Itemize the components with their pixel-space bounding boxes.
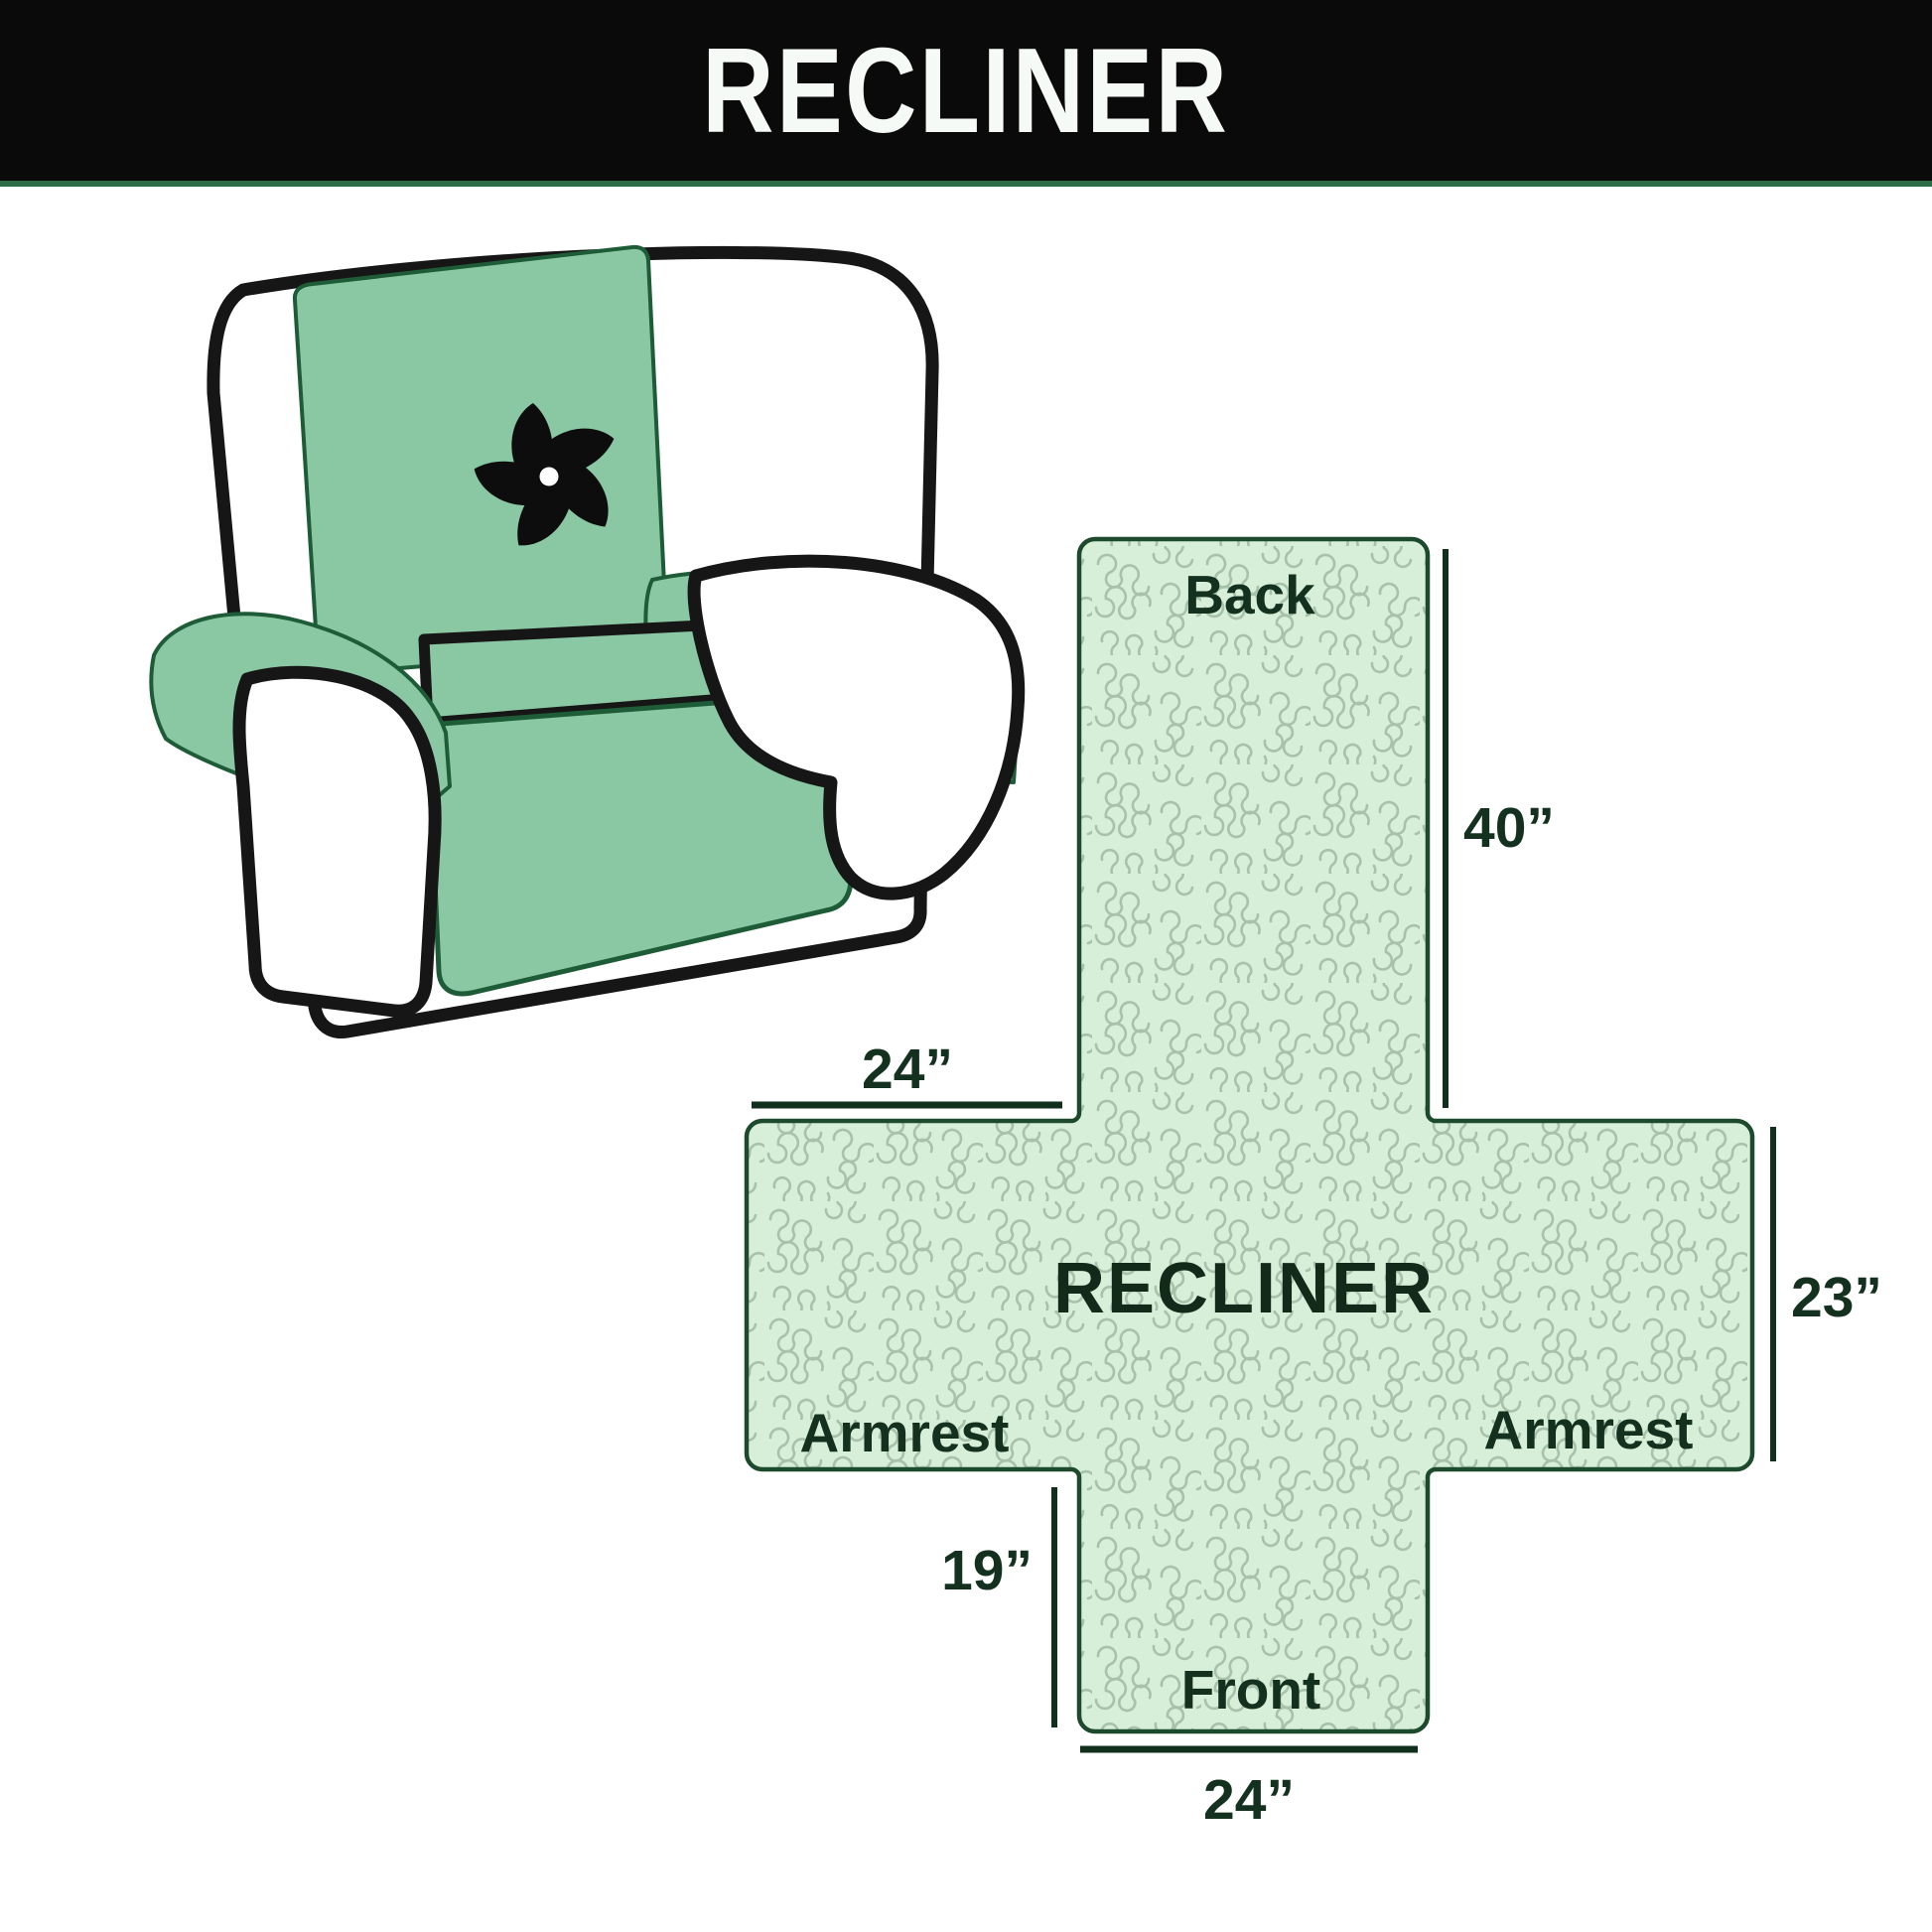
back-panel-label: Back bbox=[1184, 564, 1315, 625]
chair-back-cover-panel bbox=[295, 247, 667, 675]
dim-back-height-value: 40” bbox=[1463, 796, 1555, 860]
dim-front-bottom-width-value: 24” bbox=[1203, 1768, 1295, 1832]
recliner-cover-diagram: Back RECLINER Armrest Armrest Front 40” … bbox=[0, 0, 1932, 1932]
front-panel-label: Front bbox=[1181, 1659, 1321, 1721]
dim-front-side-height-value: 19” bbox=[941, 1539, 1033, 1602]
armchair-illustration bbox=[151, 247, 1020, 1033]
dim-armrest-side-height-value: 23” bbox=[1791, 1266, 1882, 1329]
center-recliner-label: RECLINER bbox=[1053, 1249, 1435, 1328]
pinwheel-center-dot bbox=[540, 468, 559, 486]
armrest-left-label: Armrest bbox=[800, 1402, 1010, 1463]
chair-left-arm-roll bbox=[239, 672, 435, 1011]
dim-armrest-top-width-value: 24” bbox=[862, 1037, 953, 1101]
armrest-right-label: Armrest bbox=[1484, 1399, 1694, 1460]
